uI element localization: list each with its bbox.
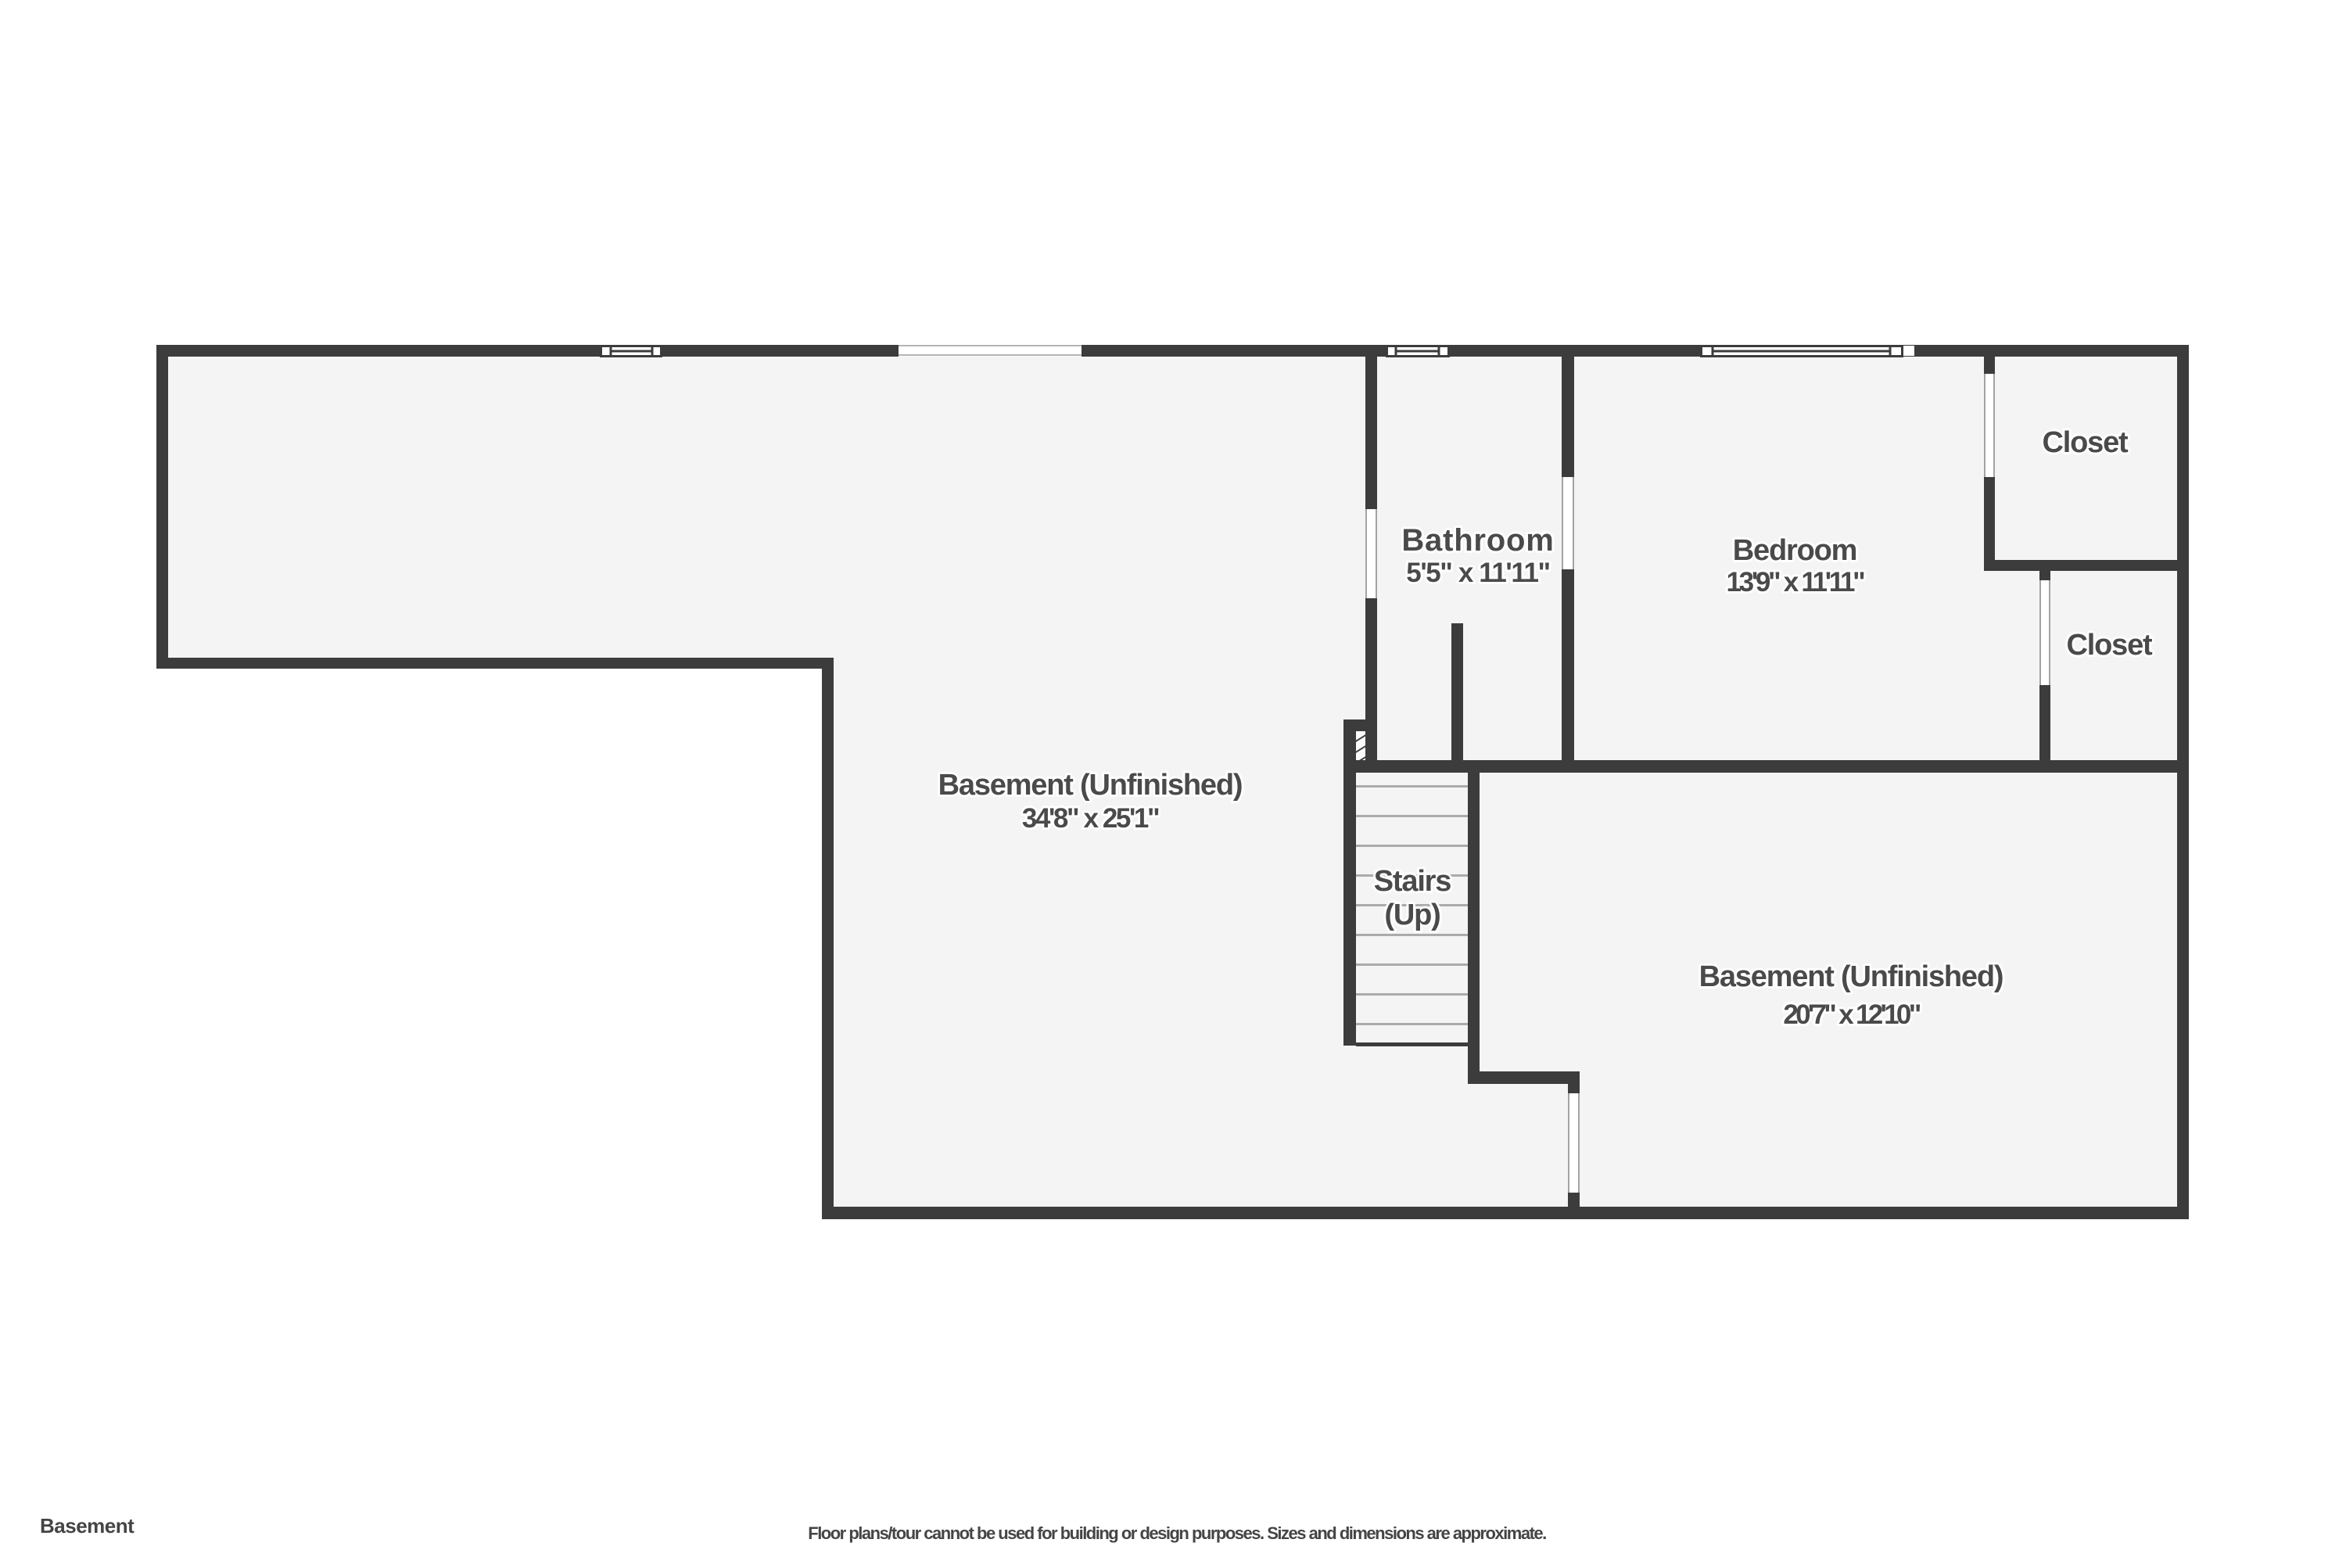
- svg-text:Basement: Basement: [40, 1514, 135, 1538]
- svg-text:13'9" x 11'11": 13'9" x 11'11": [1727, 567, 1865, 597]
- svg-text:20'7" x 12'10": 20'7" x 12'10": [1783, 999, 1920, 1030]
- svg-text:Closet: Closet: [2067, 629, 2153, 662]
- svg-text:(Up): (Up): [1384, 899, 1440, 931]
- svg-text:34'8" x 25'1": 34'8" x 25'1": [1022, 803, 1159, 834]
- svg-text:Bedroom: Bedroom: [1733, 534, 1856, 567]
- svg-text:Closet: Closet: [2043, 426, 2129, 459]
- svg-text:Basement (Unfinished): Basement (Unfinished): [1699, 960, 2003, 993]
- svg-text:Floor plans/tour cannot be use: Floor plans/tour cannot be used for buil…: [808, 1523, 1546, 1543]
- svg-text:Basement (Unfinished): Basement (Unfinished): [938, 769, 1243, 802]
- svg-text:Bathroom: Bathroom: [1401, 523, 1554, 558]
- svg-text:5'5" x 11'11": 5'5" x 11'11": [1406, 558, 1549, 588]
- svg-text:Stairs: Stairs: [1374, 865, 1451, 898]
